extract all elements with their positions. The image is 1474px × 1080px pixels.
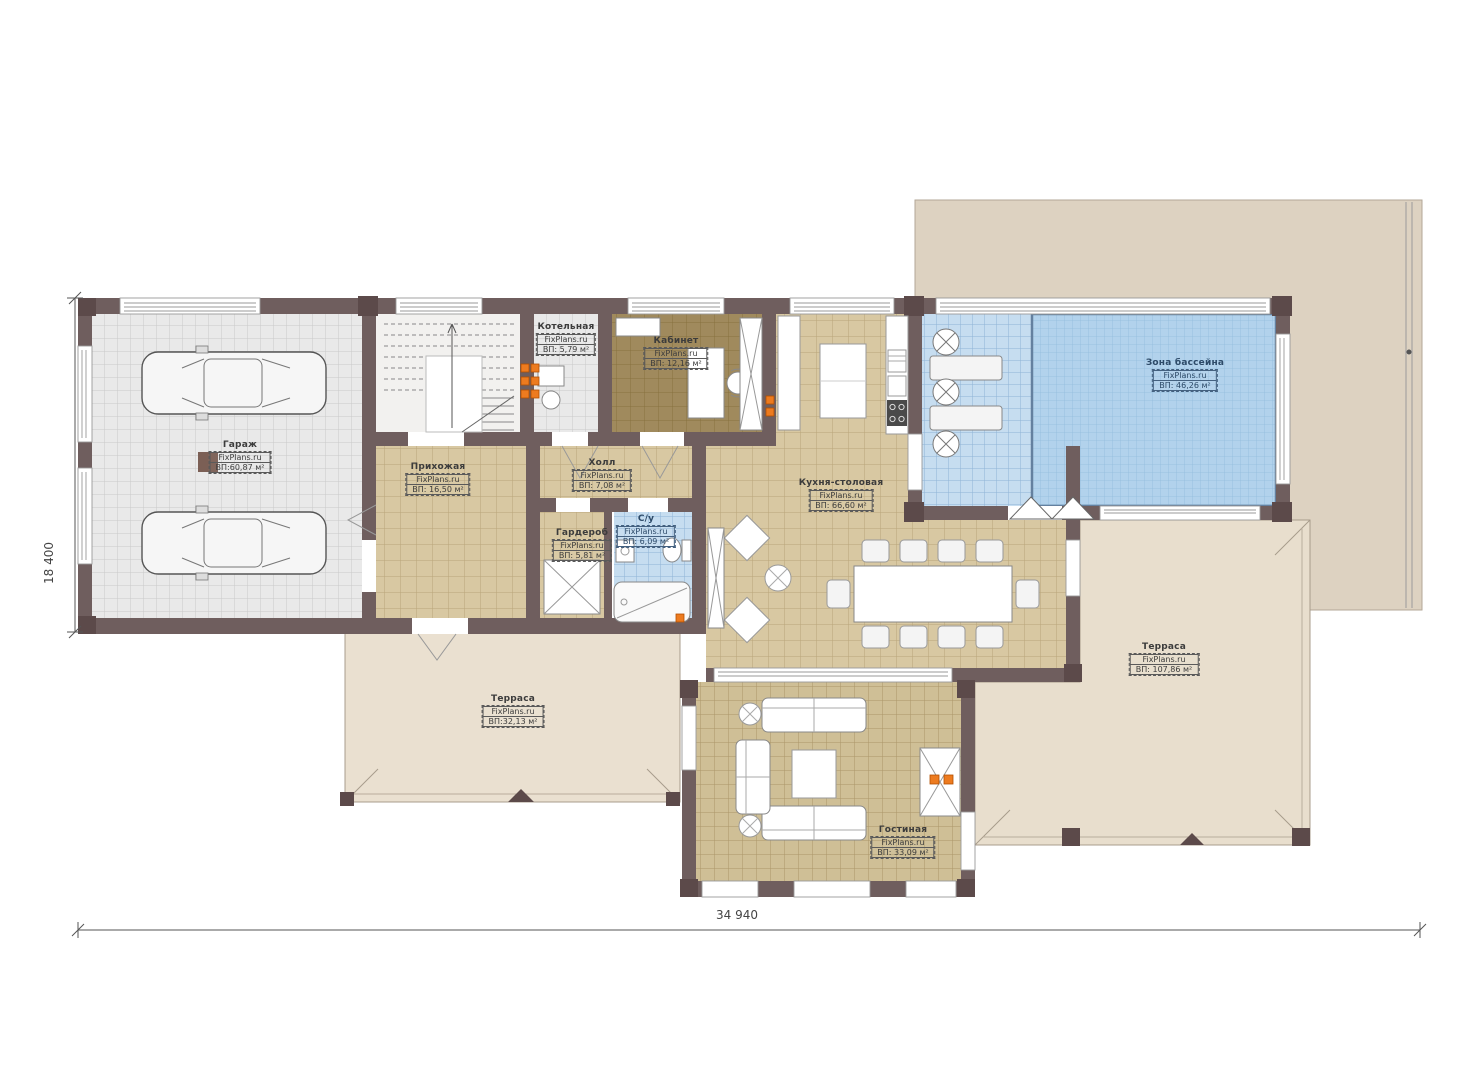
- room-label-bathroom: С/у FixPlans.ru ВП: 6,09 м²: [616, 514, 676, 548]
- brand-watermark: FixPlans.ru: [644, 348, 707, 359]
- room-area: ВП:60,87 м²: [210, 463, 271, 473]
- room-area: ВП: 33,09 м²: [871, 848, 934, 858]
- car-2: [142, 506, 326, 580]
- room-area: ВП: 6,09 м²: [617, 537, 675, 547]
- pool-drain-icons: [933, 329, 959, 457]
- room-label-boiler: Котельная FixPlans.ru ВП: 5,79 м²: [536, 322, 596, 356]
- brand-watermark: FixPlans.ru: [617, 526, 675, 537]
- room-name: Прихожая: [405, 462, 470, 472]
- room-area: ВП: 66,60 м²: [809, 501, 872, 511]
- car-1: [142, 346, 326, 420]
- room-area: ВП: 16,50 м²: [406, 485, 469, 495]
- floor-plan-canvas: Гараж FixPlans.ru ВП:60,87 м² Котельная …: [0, 0, 1474, 1080]
- room-name: Кабинет: [643, 336, 708, 346]
- room-area: ВП: 5,79 м²: [537, 345, 595, 355]
- room-area: ВП: 46,26 м²: [1153, 381, 1216, 391]
- brand-watermark: FixPlans.ru: [210, 452, 271, 463]
- room-area: ВП: 107,86 м²: [1130, 665, 1199, 675]
- room-name: Холл: [572, 458, 632, 468]
- brand-watermark: FixPlans.ru: [406, 474, 469, 485]
- room-label-pool-zone: Зона бассейна FixPlans.ru ВП: 46,26 м²: [1146, 358, 1224, 392]
- brand-watermark: FixPlans.ru: [1153, 370, 1216, 381]
- brand-watermark: FixPlans.ru: [553, 540, 611, 551]
- room-label-office: Кабинет FixPlans.ru ВП: 12,16 м²: [643, 336, 708, 370]
- room-area: ВП:32,13 м²: [483, 717, 544, 727]
- room-name: С/у: [616, 514, 676, 524]
- room-label-living-room: Гостиная FixPlans.ru ВП: 33,09 м²: [870, 825, 935, 859]
- room-name: Котельная: [536, 322, 596, 332]
- room-name: Терраса: [482, 694, 545, 704]
- room-label-wardrobe: Гардероб FixPlans.ru ВП: 5,81 м²: [552, 528, 612, 562]
- room-label-garage: Гараж FixPlans.ru ВП:60,87 м²: [209, 440, 272, 474]
- room-label-hallway: Прихожая FixPlans.ru ВП: 16,50 м²: [405, 462, 470, 496]
- room-name: Гостиная: [870, 825, 935, 835]
- brand-watermark: FixPlans.ru: [809, 490, 872, 501]
- room-name: Кухня-столовая: [799, 478, 884, 488]
- dimension-width: 34 940: [716, 908, 758, 922]
- brand-watermark: FixPlans.ru: [871, 837, 934, 848]
- room-area: ВП: 12,16 м²: [644, 359, 707, 369]
- room-name: Зона бассейна: [1146, 358, 1224, 368]
- room-label-kitchen-dining: Кухня-столовая FixPlans.ru ВП: 66,60 м²: [799, 478, 884, 512]
- room-label-terrace-left: Терраса FixPlans.ru ВП:32,13 м²: [482, 694, 545, 728]
- dimension-height: 18 400: [42, 542, 56, 584]
- room-name: Гардероб: [552, 528, 612, 538]
- room-area: ВП: 7,08 м²: [573, 481, 631, 491]
- brand-watermark: FixPlans.ru: [483, 706, 544, 717]
- fireplace: [920, 748, 960, 816]
- room-label-hall: Холл FixPlans.ru ВП: 7,08 м²: [572, 458, 632, 492]
- room-area: ВП: 5,81 м²: [553, 551, 611, 561]
- room-name: Терраса: [1129, 642, 1200, 652]
- brand-watermark: FixPlans.ru: [1130, 654, 1199, 665]
- brand-watermark: FixPlans.ru: [573, 470, 631, 481]
- room-name: Гараж: [209, 440, 272, 450]
- room-label-terrace-right: Терраса FixPlans.ru ВП: 107,86 м²: [1129, 642, 1200, 676]
- brand-watermark: FixPlans.ru: [537, 334, 595, 345]
